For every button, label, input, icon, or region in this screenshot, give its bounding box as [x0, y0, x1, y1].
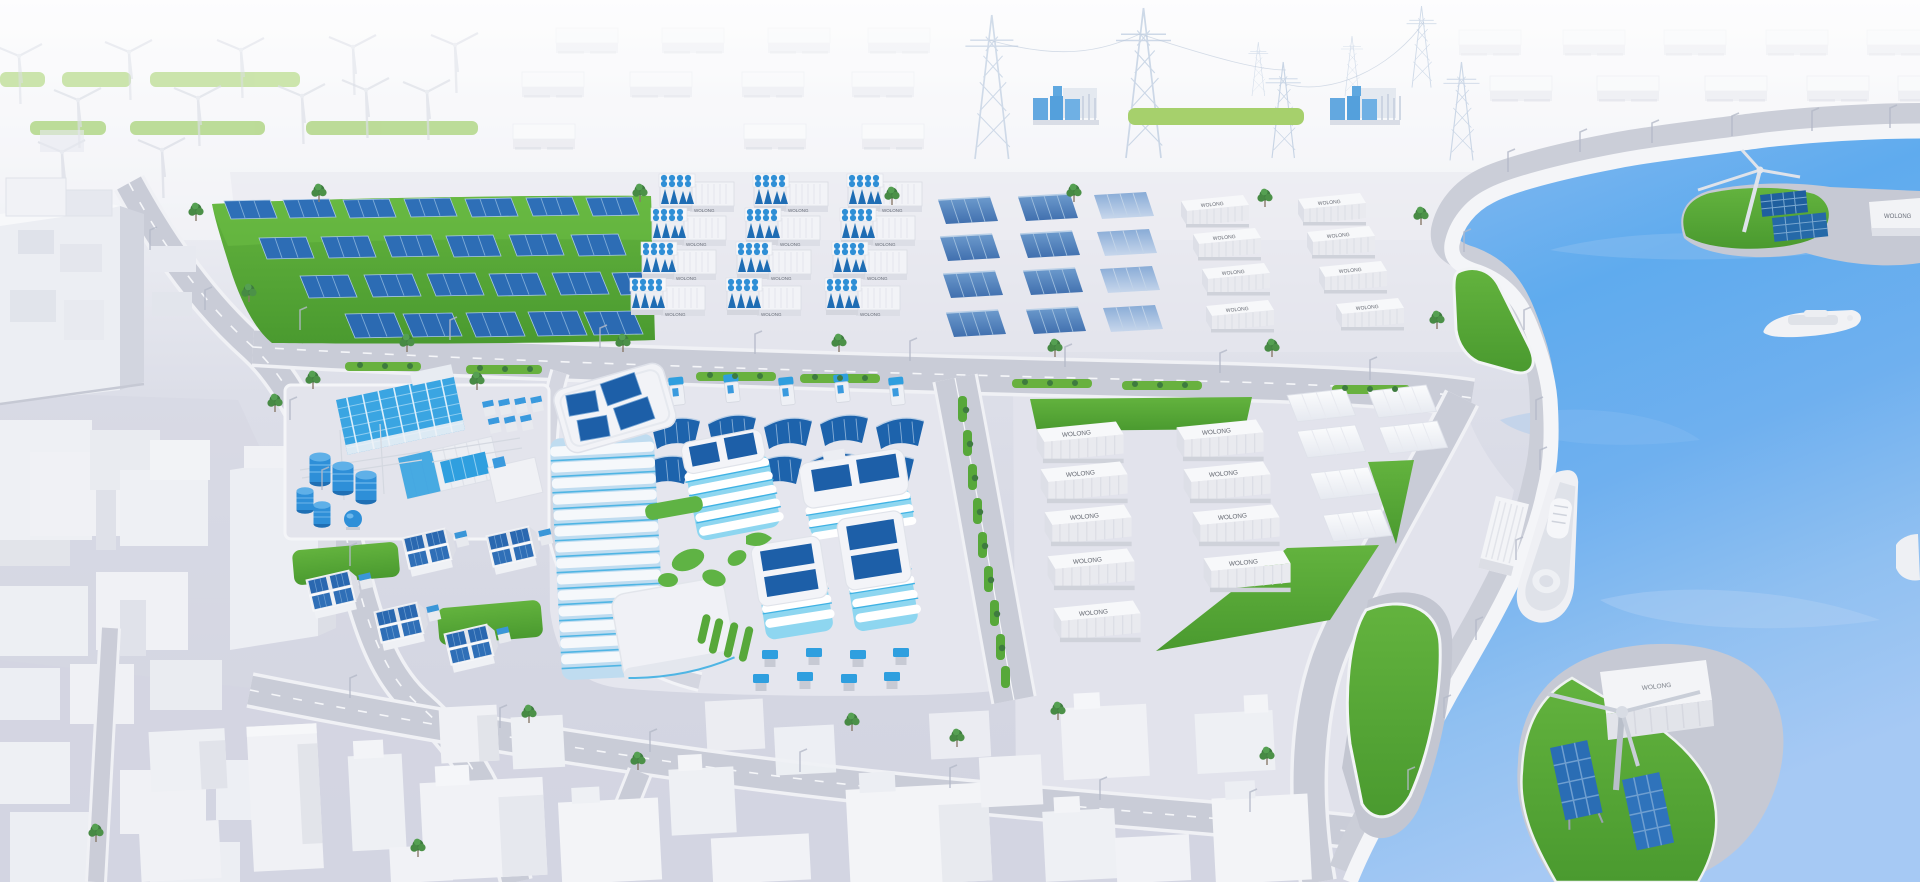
- svg-text:WOLONG: WOLONG: [1884, 214, 1912, 220]
